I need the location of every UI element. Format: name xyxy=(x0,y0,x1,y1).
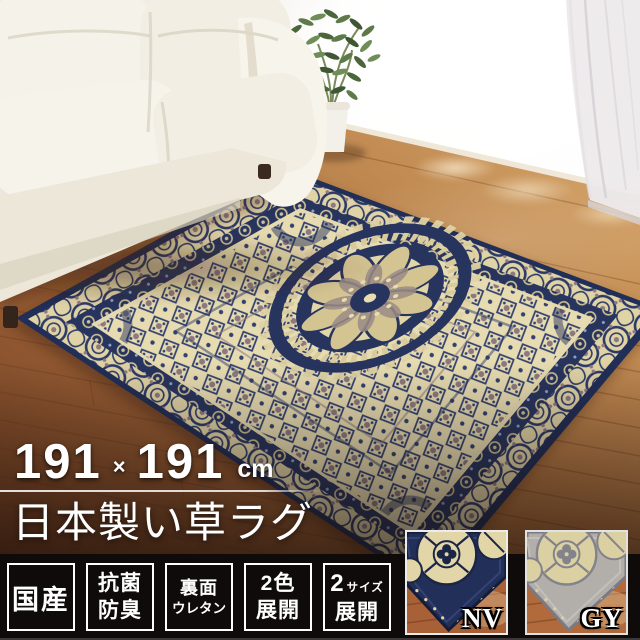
badge-two-colors: 2色 展開 xyxy=(244,563,312,631)
badge-two-sizes: 2サイズ 展開 xyxy=(323,563,391,631)
badge-urethane-backing: 裏面 ウレタン xyxy=(165,563,233,631)
feature-badge-row: 国産 抗菌 防臭 裏面 ウレタン 2色 展開 2サイズ 展開 xyxy=(7,563,391,631)
product-title: 日本製い草ラグ xyxy=(12,501,313,547)
badge-domestic: 国産 xyxy=(7,563,75,631)
swatch-label-nv: NV xyxy=(462,605,503,632)
color-swatch-gy: GY xyxy=(525,530,628,635)
size-banner: 191 × 191 cm xyxy=(14,438,274,487)
color-swatch-nv: NV xyxy=(405,530,508,635)
size-width-value: 191 xyxy=(14,438,102,487)
sofa-foot xyxy=(3,306,18,328)
badge-antibacterial-deodorant: 抗菌 防臭 xyxy=(86,563,154,631)
sofa-foot xyxy=(258,164,271,179)
size-underline xyxy=(0,490,323,492)
product-image: 191 × 191 cm 日本製い草ラグ 国産 抗菌 防臭 裏面 ウレタン 2色… xyxy=(0,0,640,640)
size-unit: cm xyxy=(237,455,273,487)
size-height-value: 191 xyxy=(137,438,225,487)
multiply-sign: × xyxy=(113,454,126,480)
swatch-label-gy: GY xyxy=(581,605,624,632)
